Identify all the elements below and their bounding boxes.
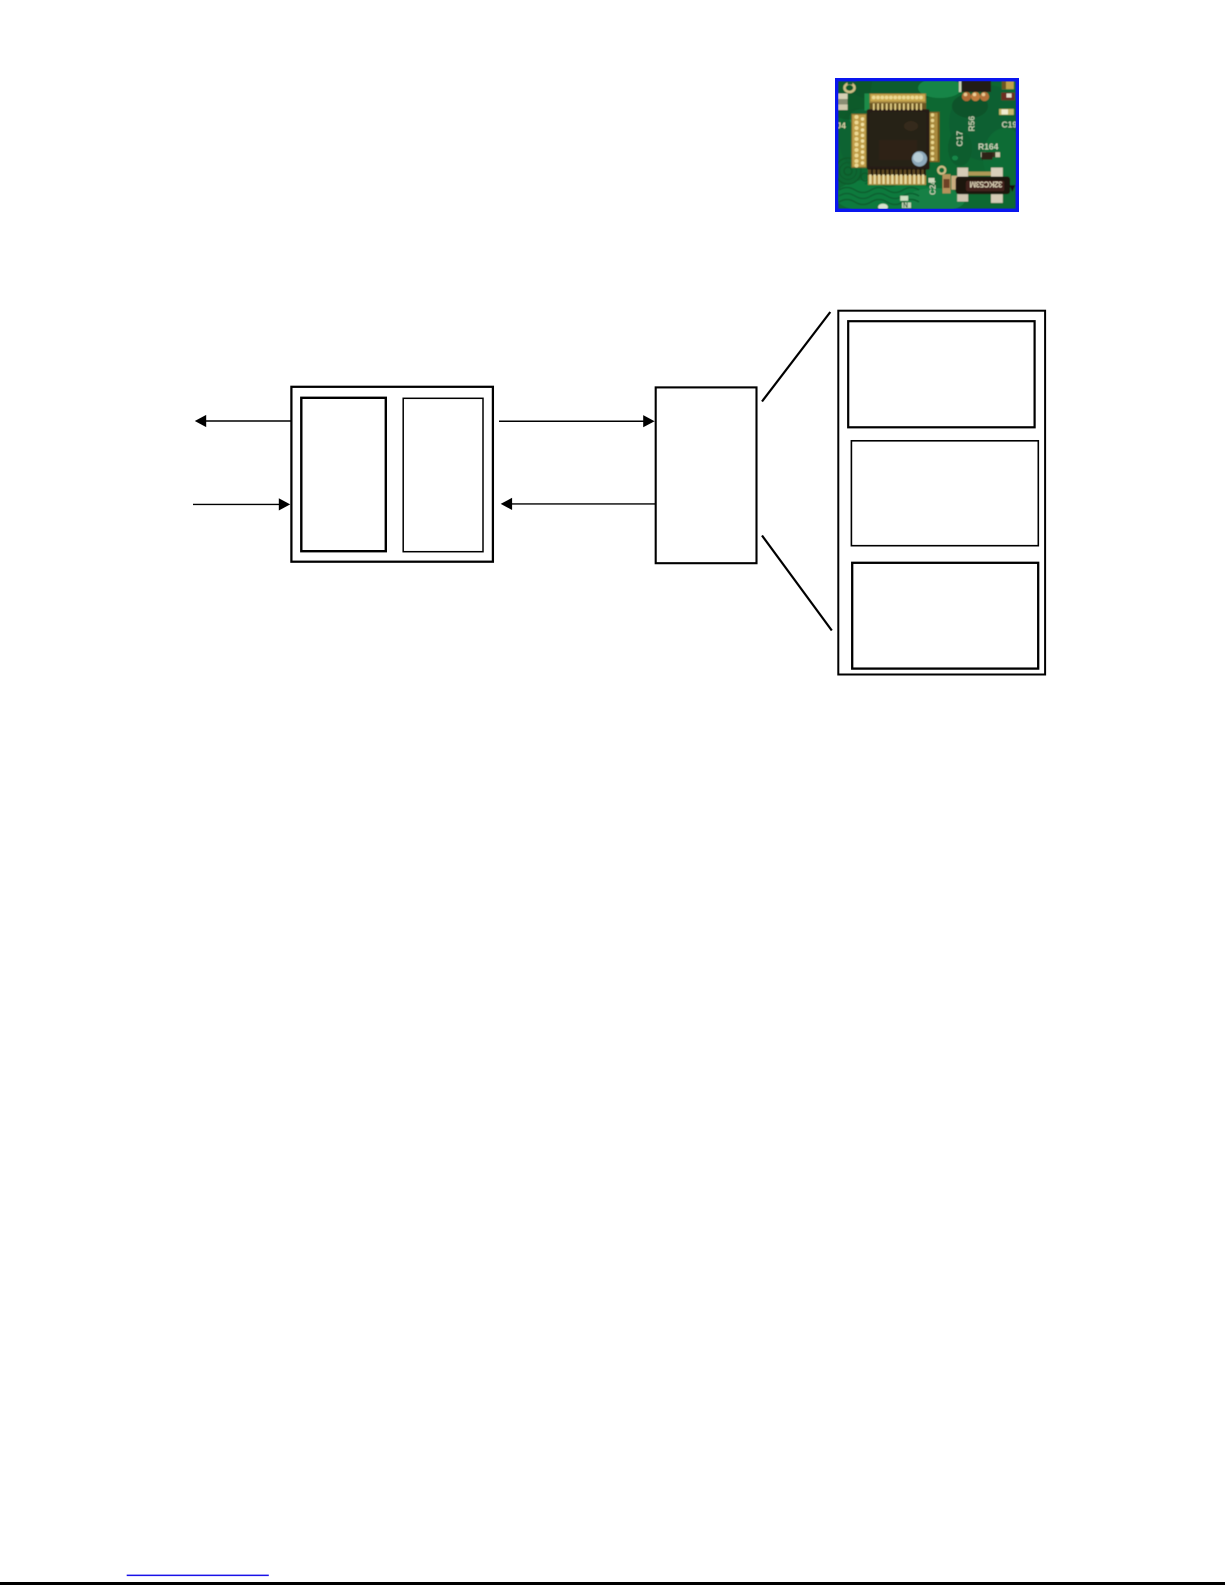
svg-text:C17: C17: [955, 131, 965, 147]
svg-text:R56: R56: [967, 116, 977, 132]
svg-text:N: N: [903, 203, 908, 210]
svg-text:C19: C19: [1002, 120, 1018, 130]
svg-text:R164: R164: [978, 142, 999, 152]
svg-text:32KC53M: 32KC53M: [969, 180, 1002, 189]
